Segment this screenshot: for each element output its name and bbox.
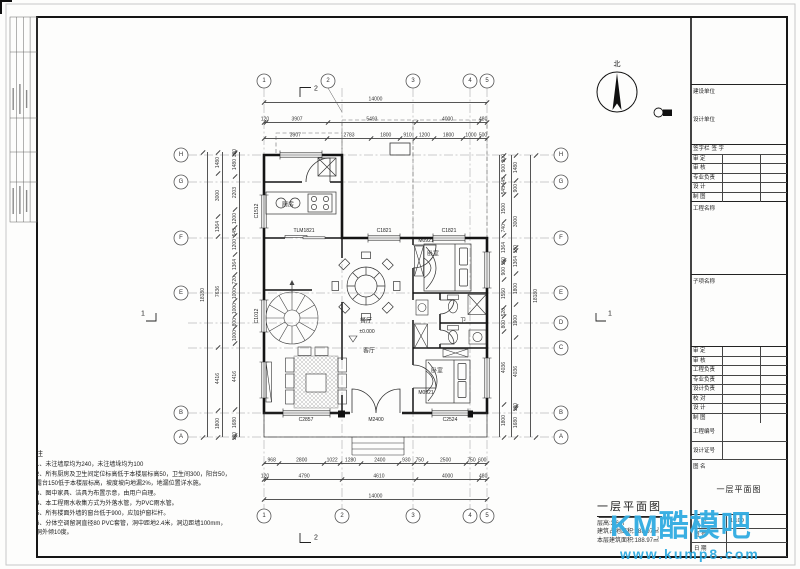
grid-bubble-left-B: B: [174, 406, 188, 420]
grid-bubble-left-A: A: [174, 430, 188, 444]
drawing-title: 一层平面图: [597, 498, 662, 517]
grid-bubble-right-B: B: [554, 406, 568, 420]
grid-bubble-left-E: E: [174, 286, 188, 300]
grid-bubble-right-D: D: [554, 316, 568, 330]
dim-col-left-detail: 1201480220312005451200136472010001000800…: [231, 152, 240, 437]
view-marker-icon: [654, 108, 672, 117]
binding-strip-text-smudge: [13, 84, 28, 214]
meta-rows: 比 例1:100图 号日 期: [691, 515, 787, 557]
window-label-c1821: C1821: [377, 228, 392, 234]
grid-bubble-top-3: 3: [406, 74, 420, 88]
grid-bubble-top-5: 5: [480, 74, 494, 88]
note-item: 2、所有厨房及卫生间定位标高低于本楼层标高50，卫生间300，阳台50，露台15…: [36, 471, 232, 491]
project-name-label: 工程名称: [693, 204, 715, 212]
sofa-group: [286, 347, 347, 408]
drawing-title-block: 一层平面图 层高:3.6m 建筑占地面积:188.97㎡ 本层建筑面积:188.…: [597, 497, 689, 545]
dim-row-bottom-axis: 120479046104000480: [264, 469, 487, 480]
staff-rows: 审 定审 核工程负责专业负责设计负责校 对设 计制 图: [691, 347, 787, 423]
level-mark-label: ±0.000: [359, 329, 374, 335]
grid-bubble-bottom-3: 3: [406, 509, 420, 523]
dim-row-top-detail: 390727831800910120018001000500: [264, 128, 487, 139]
meta-table: 比 例1:100图 号日 期: [691, 515, 787, 557]
cad-drawing-page: 1 2 3 4 5 1 2 3 4 5 H G F E B A H G F E …: [0, 0, 800, 569]
grid-bubble-bottom-1: 1: [257, 509, 271, 523]
note-item: 6、分体空调留洞直径80 PVC套管，洞中距地2.4米，洞边距墙100mm，洞外…: [36, 520, 232, 540]
signature-header-row: 签字栏签 字: [691, 145, 787, 155]
section-number-top: 2: [314, 86, 318, 93]
window-label-c1512: C1512: [254, 204, 260, 219]
section-number-right: 1: [608, 311, 612, 318]
signature-table: 签字栏签 字 审 定审 核专业负责设 计制 图: [691, 145, 787, 202]
grid-bubble-right-A: A: [554, 430, 568, 444]
extra-rows: 工程编号设计证号: [691, 423, 787, 460]
note-item: 4、本工程雨水收集方式为外落水管，为PVC雨水管。: [36, 500, 232, 510]
dim-row-top-overall: 14000: [264, 92, 487, 103]
room-label-bedroom: 卧室: [427, 249, 439, 258]
room-label-kitchen: 厨房: [282, 200, 294, 209]
bathroom-fixtures: [416, 295, 486, 345]
room-label-living: 客厅: [363, 346, 375, 355]
binding-strip: [10, 17, 37, 222]
grid-bubble-bottom-5: 5: [480, 509, 494, 523]
grid-bubble-right-C: C: [554, 341, 568, 355]
staff-table: 审 定审 核工程负责专业负责设计负责校 对设 计制 图 工程编号设计证号: [691, 347, 787, 460]
dim-row-bottom-detail: 96828001022128024009307502500750600: [264, 453, 487, 464]
designer-label: 设计单位: [693, 115, 715, 123]
title-block: 建设单位 设计单位 签字栏签 字 审 定审 核专业负责设 计制 图 工程名称 子…: [691, 17, 787, 557]
note-item: 3、图中家具、洁具为布置示意，由用户自理。: [36, 490, 232, 500]
level-mark-triangle: [349, 336, 357, 342]
dim-col-right-overall: 18180: [530, 155, 541, 437]
dim-col-right-axis: 1480900300018013641800190040361201680: [511, 155, 520, 437]
sliding-door: [285, 236, 325, 239]
figure-name: 一层平面图: [691, 484, 787, 495]
grid-bubble-right-H: H: [554, 148, 568, 162]
dim-col-left-axis: 148030001364763644161800: [214, 152, 223, 437]
grid-bubble-left-H: H: [174, 148, 188, 162]
notes-title: 注: [36, 450, 232, 460]
grid-bubble-right-F: F: [554, 231, 568, 245]
grid-bubble-bottom-2: 2: [335, 509, 349, 523]
title-block-logo-box: [691, 17, 787, 85]
door-label-tlm1821: TLM1821: [293, 228, 314, 234]
note-item: 1、未注墙厚均为240，未注墙垛均为100: [36, 461, 232, 471]
door-label-m2400: M2400: [368, 417, 383, 423]
signature-rows: 审 定审 核专业负责设 计制 图: [691, 155, 787, 203]
room-label-bath: 卫: [460, 316, 466, 325]
dim-row-top-axis: 120390754934000480: [264, 112, 487, 123]
grid-bubble-top-4: 4: [463, 74, 477, 88]
general-notes: 注 1、未注墙厚均为240，未注墙垛均为1002、所有厨房及卫生间定位标高低于本…: [36, 450, 232, 539]
window-label-c1821: C1821: [442, 228, 457, 234]
grid-bubble-left-G: G: [174, 175, 188, 189]
room-label-bedroom: 卧室: [431, 366, 443, 375]
section-number-bottom: 2: [314, 535, 318, 542]
figure-name-label: 图 名: [693, 462, 706, 470]
bay-projection: [390, 143, 410, 155]
subproject-name-label: 子项名称: [693, 277, 715, 285]
dim-col-right-detail: 3009004455451500740136415090015505208004…: [499, 155, 508, 437]
grid-bubble-left-F: F: [174, 231, 188, 245]
north-arrow-icon: [597, 72, 637, 112]
room-label-dining: 餐厅: [360, 316, 372, 325]
note-item: 5、所有楼面外墙的窗台低于900，应加护窗栏杆。: [36, 510, 232, 520]
door-label-m0921: M0921: [418, 390, 433, 396]
grid-bubble-top-1: 1: [257, 74, 271, 88]
grid-bubble-right-E: E: [554, 286, 568, 300]
window-label-c2857: C2857: [299, 417, 314, 423]
floor-area-note: 本层建筑面积:188.97㎡: [597, 537, 689, 546]
window-label-c2524: C2524: [443, 417, 458, 423]
window-label-c1012: C1012: [254, 309, 260, 324]
owner-label: 建设单位: [693, 87, 715, 95]
dim-col-left-overall: 18180: [199, 152, 208, 437]
kitchen-counter: [266, 158, 336, 214]
footprint-area-note: 建筑占地面积:188.97㎡: [597, 528, 689, 537]
column: [338, 411, 345, 418]
grid-bubble-bottom-4: 4: [463, 509, 477, 523]
door-label-m0921: M0921: [418, 238, 433, 244]
north-label: 北: [614, 59, 621, 69]
floor-height-note: 层高:3.6m: [597, 520, 689, 529]
notes-list: 1、未注墙厚均为240，未注墙垛均为1002、所有厨房及卫生间定位标高低于本楼层…: [36, 461, 232, 539]
dim-row-bottom-overall: 14000: [264, 489, 487, 500]
section-number-left: 1: [141, 311, 145, 318]
grid-bubble-top-2: 2: [321, 74, 335, 88]
grid-bubble-right-G: G: [554, 175, 568, 189]
